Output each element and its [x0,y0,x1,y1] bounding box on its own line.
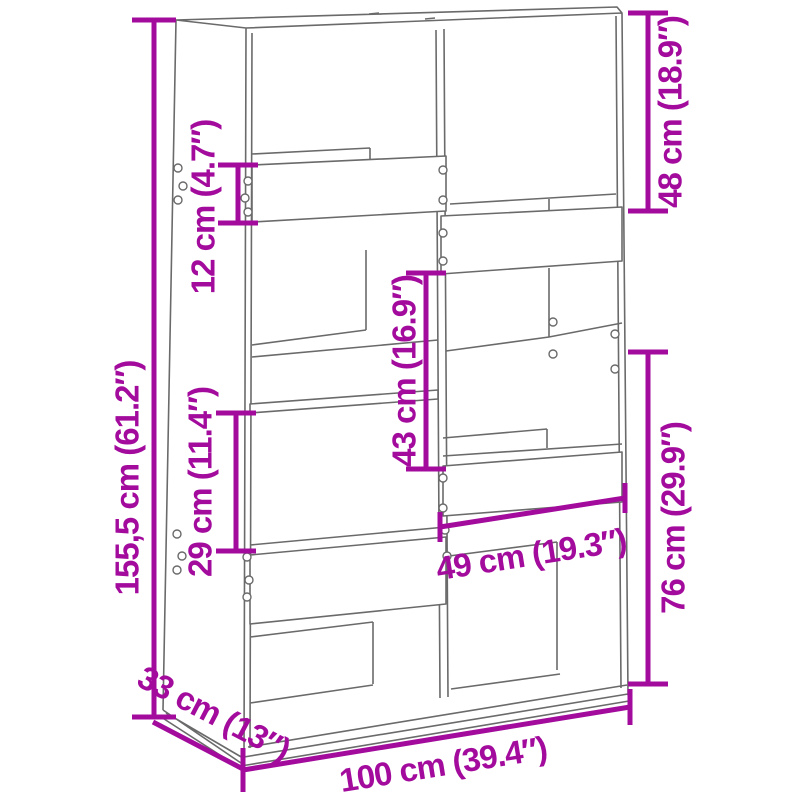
dimension-top-opening-label: 48 cm (18.9″) [652,16,689,208]
dimension-lower-right-label: 76 cm (29.9″) [655,422,692,614]
dimension-middle-opening-label: 43 cm (16.9″) [386,275,423,467]
diagram-canvas: 155,5 cm (61.2″) 12 cm (4.7″) 48 cm (18.… [0,0,800,800]
dimension-shelf-front-label: 12 cm (4.7″) [185,120,222,294]
shelf-band-left-upper [252,156,446,222]
dimension-left-opening-label: 29 cm (11.4″) [182,387,219,577]
dimension-diagram: 155,5 cm (61.2″) 12 cm (4.7″) 48 cm (18.… [0,0,800,800]
dimension-height-label: 155,5 cm (61.2″) [109,361,146,596]
